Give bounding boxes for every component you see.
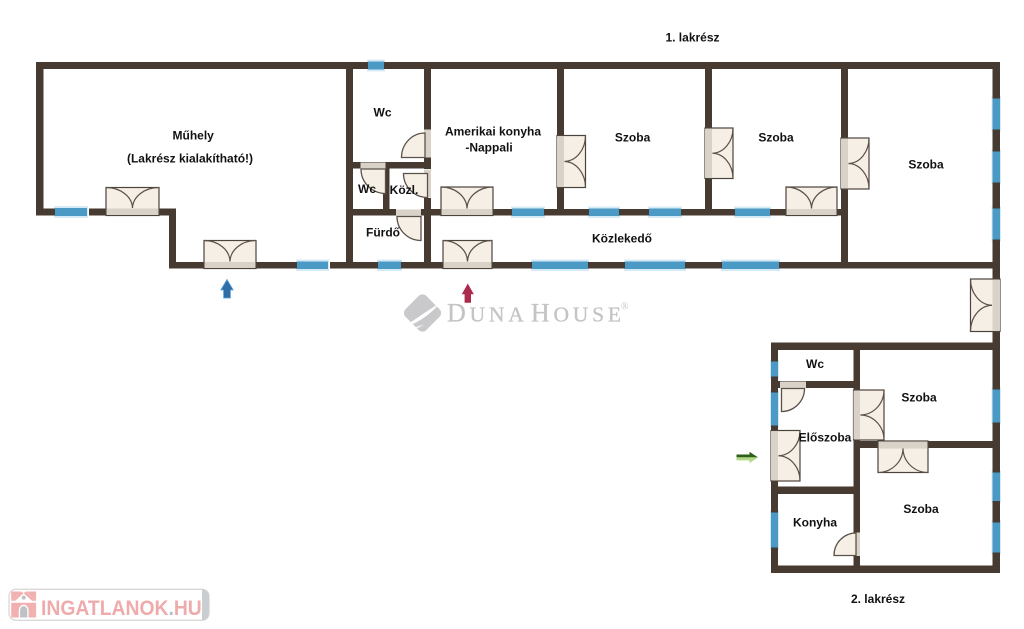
- svg-text:Konyha: Konyha: [793, 515, 837, 529]
- svg-text:Wc: Wc: [374, 106, 392, 120]
- svg-text:-Nappali: -Nappali: [465, 140, 512, 154]
- svg-text:Közlekedő: Közlekedő: [592, 232, 652, 246]
- svg-text:Szoba: Szoba: [903, 502, 939, 516]
- svg-text:Amerikai konyha: Amerikai konyha: [445, 125, 541, 139]
- svg-text:Előszoba: Előszoba: [799, 431, 852, 445]
- svg-text:Fürdő: Fürdő: [366, 226, 400, 240]
- svg-text:Wc: Wc: [358, 182, 376, 196]
- svg-text:Szoba: Szoba: [758, 131, 794, 145]
- svg-text:Szoba: Szoba: [901, 391, 937, 405]
- svg-text:Műhely: Műhely: [173, 129, 215, 143]
- svg-text:Közl.: Közl.: [390, 183, 419, 197]
- svg-text:(Lakrész kialakítható!): (Lakrész kialakítható!): [127, 152, 253, 166]
- svg-text:INGATLANOK.HU: INGATLANOK.HU: [41, 596, 202, 620]
- svg-text:1. lakrész: 1. lakrész: [665, 30, 719, 44]
- svg-text:Wc: Wc: [806, 357, 824, 371]
- svg-text:Szoba: Szoba: [615, 131, 651, 145]
- svg-text:2. lakrész: 2. lakrész: [851, 592, 905, 606]
- svg-text:®: ®: [621, 302, 629, 313]
- svg-text:Szoba: Szoba: [908, 158, 944, 172]
- svg-text:DUNA HOUSE: DUNA HOUSE: [447, 298, 625, 327]
